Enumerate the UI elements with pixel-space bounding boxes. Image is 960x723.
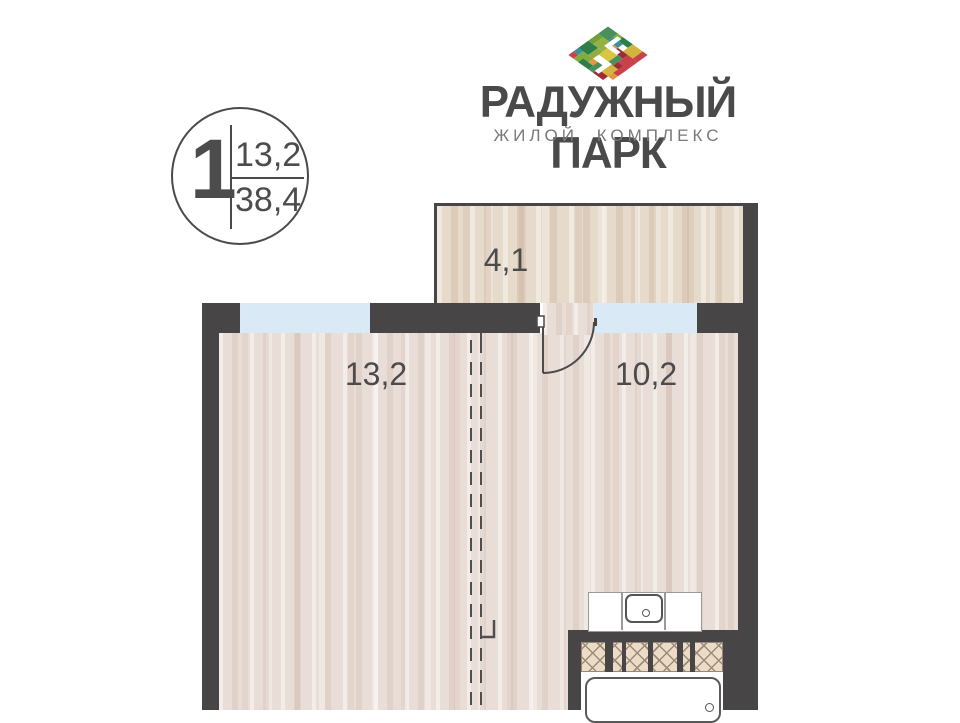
rainbow-mosaic-diamond-icon [566,25,650,85]
window-kitchen [594,303,697,333]
counter-divider-left [621,593,623,630]
top-wall-segment-left [202,303,240,333]
hatch-stud-1 [605,642,613,672]
room-label-living-room: 13,2 [326,356,426,393]
window-living-room [240,303,370,333]
unit-info-badge: 1 13,2 38,4 [171,107,309,245]
bathtub [585,677,721,723]
hatch-stud-4 [677,642,683,672]
counter-divider-right [664,593,666,630]
top-wall-segment-right [697,303,758,333]
living-area-value: 13,2 [235,136,301,174]
room-label-loggia: 4,1 [456,242,556,279]
room-label-kitchen: 10,2 [596,356,696,393]
top-wall-segment-middle [370,303,540,333]
bathroom-right-wall [723,642,738,710]
kitchen-sink [625,594,663,623]
hatch-stud-3 [648,642,653,672]
hatch-stud-2 [622,642,626,672]
bathtub-drain [705,703,714,712]
logo-subtitle: ЖИЛОЙ КОМПЛЕКС [417,126,799,146]
mosaic-tiles [568,26,647,83]
badge-horizontal-divider [230,177,304,179]
sink-drain [642,609,650,617]
total-area-value: 38,4 [235,181,301,219]
hatch-stud-5 [690,642,695,672]
bathroom-left-wall [568,630,581,710]
right-outer-wall [738,333,758,710]
door-opening-floor-patch [543,303,594,335]
left-outer-wall [202,303,219,710]
